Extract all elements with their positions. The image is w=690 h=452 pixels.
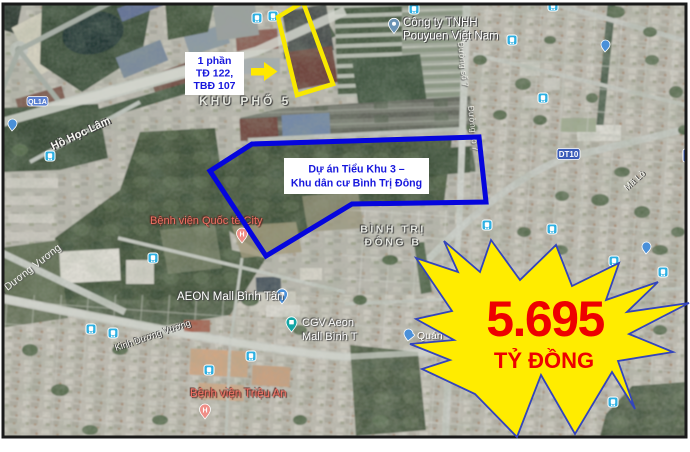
- svg-text:H: H: [202, 408, 207, 415]
- svg-text:5.695: 5.695: [486, 291, 604, 347]
- svg-text:Khu dân cư Bình Trị Đông: Khu dân cư Bình Trị Đông: [291, 178, 422, 190]
- svg-text:1 phần: 1 phần: [198, 55, 232, 67]
- svg-text:DT10: DT10: [559, 150, 579, 159]
- svg-text:ĐÔNG B: ĐÔNG B: [365, 236, 422, 249]
- svg-text:Dự án Tiểu Khu 3 –: Dự án Tiểu Khu 3 –: [308, 164, 404, 176]
- svg-text:TĐ 122,: TĐ 122,: [196, 68, 233, 80]
- svg-text:TBĐ 107: TBĐ 107: [193, 80, 235, 92]
- svg-text:Mall Bình T: Mall Bình T: [302, 331, 358, 343]
- svg-text:AEON Mall Bình Tân: AEON Mall Bình Tân: [177, 291, 284, 303]
- svg-text:Bệnh viện Triệu An: Bệnh viện Triệu An: [190, 388, 287, 400]
- svg-text:QL1A: QL1A: [28, 99, 47, 106]
- svg-text:H: H: [239, 232, 244, 239]
- svg-text:CGV Aeon: CGV Aeon: [302, 317, 354, 329]
- svg-text:KHU PHỐ 5: KHU PHỐ 5: [199, 93, 291, 108]
- svg-text:BÌNH TRỊ: BÌNH TRỊ: [360, 223, 426, 236]
- svg-text:Công ty TNHH: Công ty TNHH: [403, 17, 478, 29]
- svg-text:TỶ ĐỒNG: TỶ ĐỒNG: [494, 348, 594, 373]
- svg-text:Pouyuen Việt Nam: Pouyuen Việt Nam: [403, 31, 499, 43]
